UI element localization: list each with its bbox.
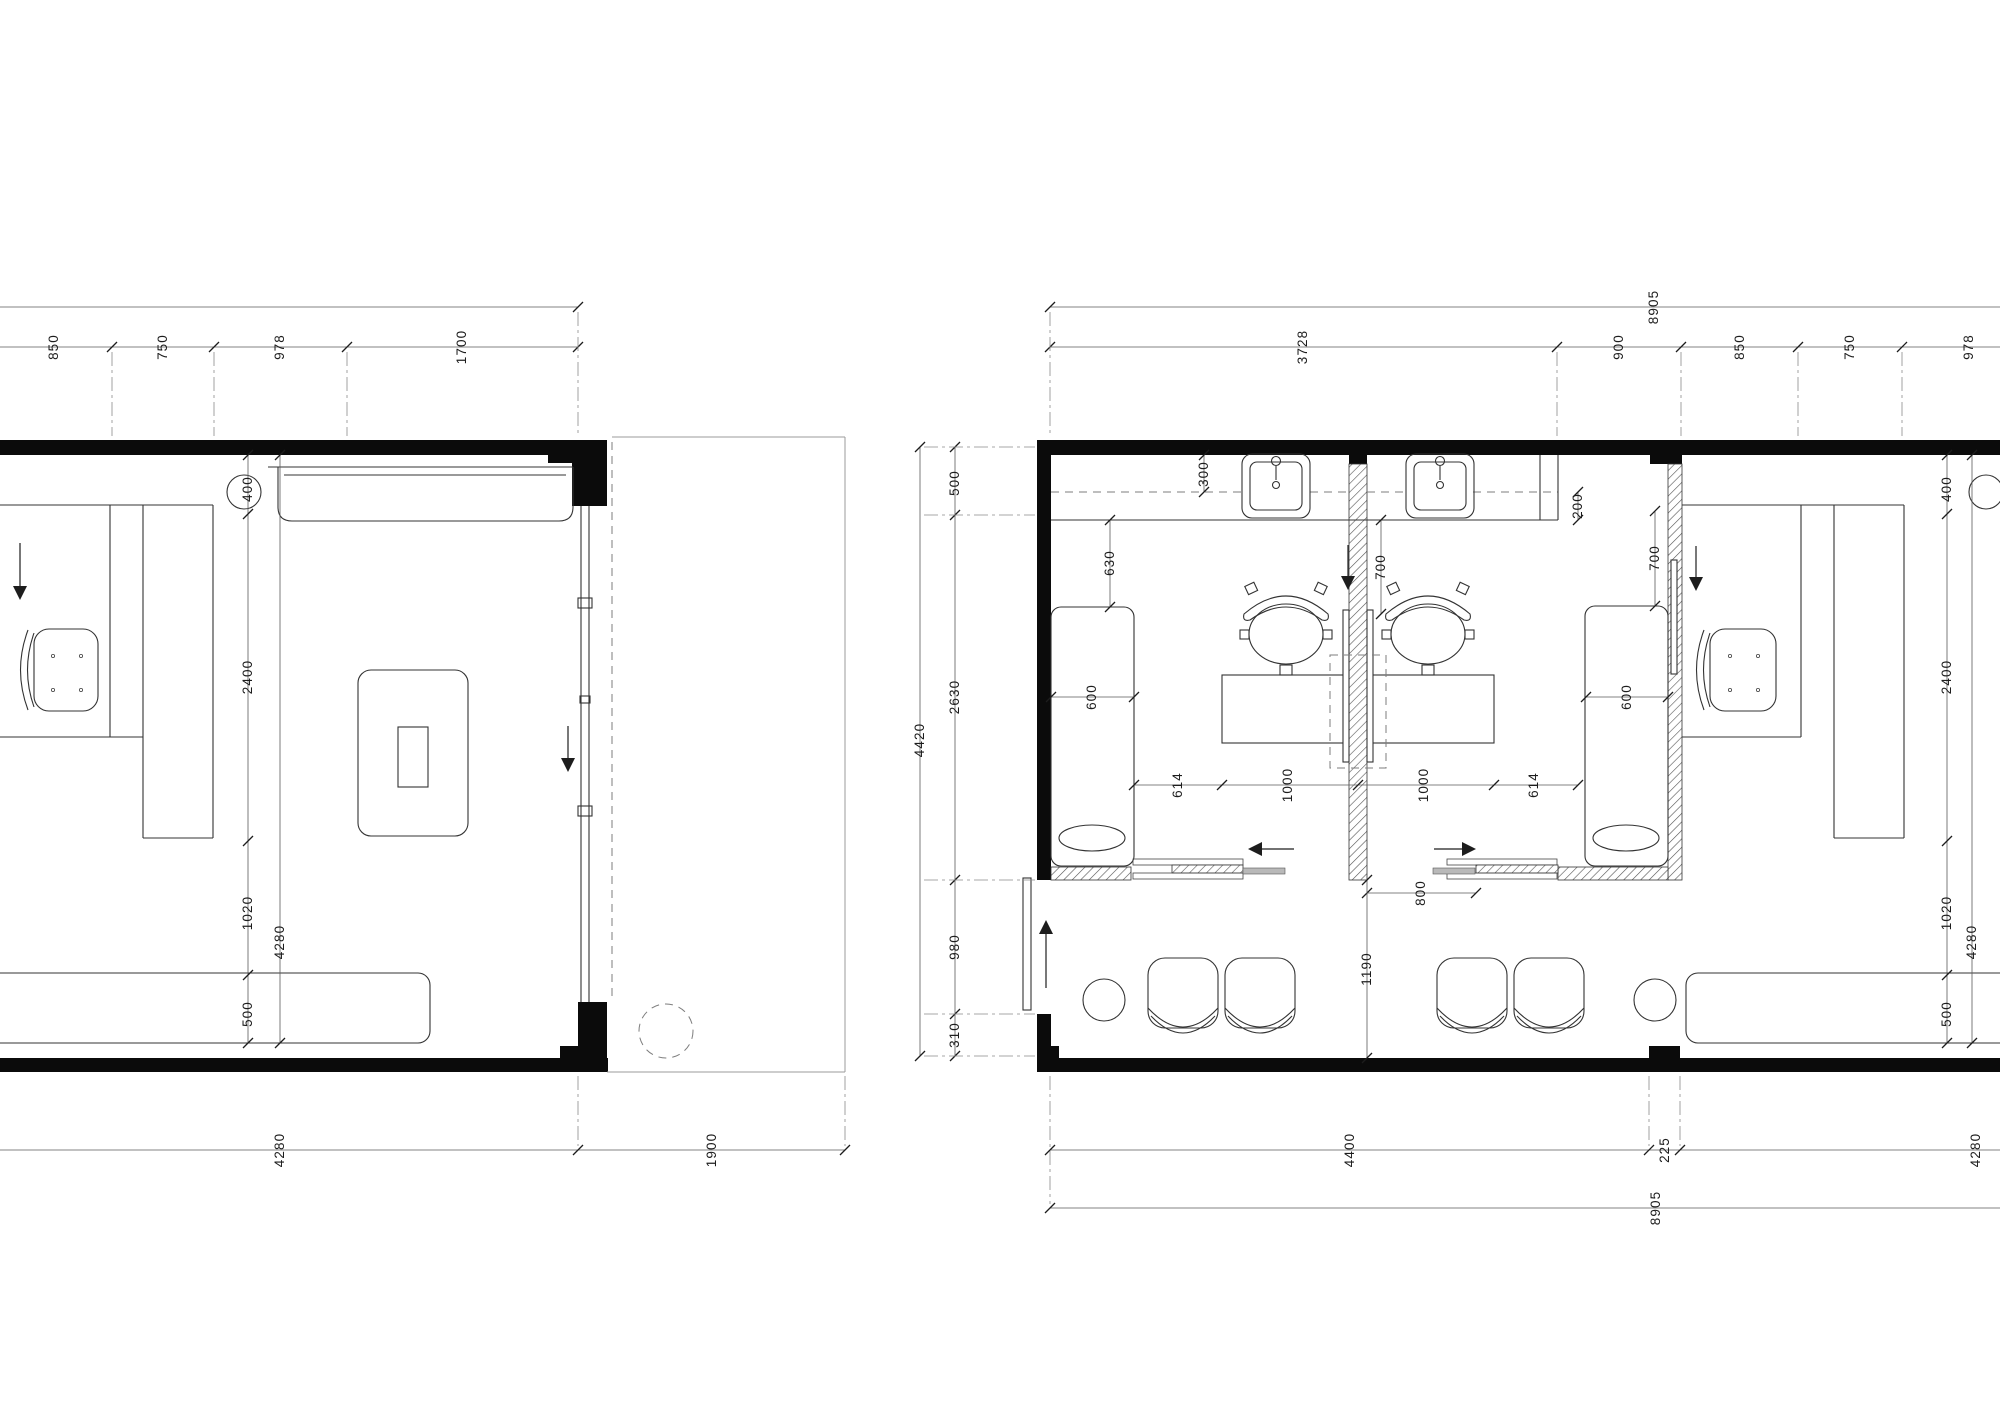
dim-label: 614 — [1170, 772, 1185, 798]
dim-label: 8905 — [1646, 290, 1661, 324]
plan-left-dimensions: 850 750 978 1700 400 2400 1020 500 4280 … — [0, 302, 850, 1167]
sill-right — [1558, 867, 1668, 880]
plan-left-walls — [0, 440, 608, 1072]
swing-arrow-window — [561, 726, 575, 772]
dim-label: 1900 — [704, 1133, 719, 1167]
dim-label: 700 — [1647, 545, 1662, 571]
wall-top — [1037, 440, 2000, 455]
wall-pier-bottom-right — [578, 1002, 607, 1072]
wall-top — [0, 440, 607, 455]
dim-label: 978 — [272, 334, 287, 360]
dim-label: 4280 — [1964, 925, 1979, 959]
dashed-circle-marker — [639, 1004, 693, 1058]
dim-label: 3728 — [1295, 330, 1310, 364]
mirror-right — [1367, 610, 1373, 762]
office-chair — [1697, 629, 1777, 711]
waiting-chair — [1225, 958, 1295, 1033]
partition-center — [1349, 464, 1367, 880]
dim-label: 4420 — [912, 723, 927, 757]
lounger-left — [1051, 607, 1134, 866]
cabinet-top — [268, 467, 573, 521]
sink-right — [1406, 454, 1474, 518]
dim-label: 1020 — [240, 896, 255, 930]
dim-label: 980 — [947, 934, 962, 960]
dim-label: 600 — [1619, 684, 1634, 710]
sink-counter — [1051, 455, 1558, 520]
dim-label: 500 — [1939, 1001, 1954, 1027]
wall-pier-225 — [1649, 1046, 1680, 1058]
dim-label: 1700 — [454, 330, 469, 364]
bench-bottom — [0, 973, 430, 1043]
dim-label: 310 — [947, 1022, 962, 1048]
treatment-table — [358, 670, 468, 836]
salon-chair-left — [1240, 582, 1332, 675]
side-table — [1634, 979, 1676, 1021]
waiting-chair — [1148, 958, 1218, 1033]
wall-step-top-right — [548, 455, 572, 463]
wall-bottom — [0, 1058, 608, 1072]
dim-label: 630 — [1102, 550, 1117, 576]
dim-label: 614 — [1526, 772, 1541, 798]
plan-left: 850 750 978 1700 400 2400 1020 500 4280 … — [0, 302, 850, 1167]
dim-label: 500 — [947, 470, 962, 496]
wall-bottom — [1037, 1058, 2000, 1072]
dim-label: 1190 — [1359, 952, 1374, 985]
dim-label: 300 — [1196, 461, 1211, 487]
adjacent-area — [607, 437, 845, 1072]
dim-label: 978 — [1961, 334, 1976, 360]
dim-label: 2400 — [1939, 660, 1954, 694]
plan-right: 8905 3728 900 850 750 978 4420 500 2630 … — [912, 290, 2000, 1225]
entry-door-leaf — [1023, 878, 1031, 1010]
salon-chair-right — [1382, 582, 1474, 675]
dim-label: 850 — [1732, 334, 1747, 360]
dim-label: 500 — [240, 1001, 255, 1027]
partition-center-cap — [1349, 455, 1367, 464]
sink-left — [1242, 454, 1310, 518]
side-table — [1083, 979, 1125, 1021]
dim-label: 850 — [46, 334, 61, 360]
floor-plan-sheet: 850 750 978 1700 400 2400 1020 500 4280 … — [0, 0, 2000, 1413]
dim-label: 400 — [240, 476, 255, 502]
desk — [0, 505, 213, 838]
sill-left — [1051, 867, 1131, 880]
mirror-left — [1343, 610, 1349, 762]
dim-label: 4280 — [1968, 1133, 1983, 1167]
plan-right-dimensions: 8905 3728 900 850 750 978 4420 500 2630 … — [912, 290, 2000, 1225]
lounger-right — [1585, 606, 1668, 866]
dim-label: 700 — [1373, 554, 1388, 580]
dim-label: 800 — [1413, 880, 1428, 906]
dim-label: 8905 — [1648, 1191, 1663, 1225]
window-wall — [578, 506, 592, 1002]
wall-left — [1037, 440, 1051, 880]
entry-arrow-left — [13, 543, 27, 600]
dim-label: 1000 — [1280, 768, 1295, 802]
entry-arrow — [1039, 920, 1053, 988]
dim-label: 1000 — [1416, 768, 1431, 802]
dim-label: 2400 — [240, 660, 255, 694]
dim-label: 4280 — [272, 925, 287, 959]
dim-label: 900 — [1611, 334, 1626, 360]
wall-step-bottom-right — [560, 1046, 578, 1058]
dim-label: 750 — [155, 334, 170, 360]
mirror-panel — [1671, 560, 1677, 674]
swing-arrow-right-room — [1689, 546, 1703, 591]
desk — [1682, 505, 1904, 838]
dim-label: 2630 — [947, 680, 962, 714]
dim-label: 225 — [1657, 1137, 1672, 1163]
partition-right-cap — [1650, 455, 1682, 464]
wall-pier-top-right — [572, 440, 607, 506]
sliding-door-right — [1433, 842, 1558, 879]
dim-label: 750 — [1842, 334, 1857, 360]
dim-label: 400 — [1939, 476, 1954, 502]
stool — [1969, 475, 2000, 509]
dim-label: 1020 — [1939, 896, 1954, 930]
dim-label: 4400 — [1342, 1133, 1357, 1167]
office-chair — [21, 629, 99, 711]
plan-right-walls — [1037, 440, 2000, 1072]
waiting-area — [1083, 958, 1676, 1033]
wall-step-bottom-left — [1037, 1046, 1059, 1058]
dim-label: 600 — [1084, 684, 1099, 710]
waiting-chair — [1437, 958, 1507, 1033]
right-office-room — [1671, 475, 2000, 1043]
floor-plan-drawing: 850 750 978 1700 400 2400 1020 500 4280 … — [0, 0, 2000, 1413]
waiting-chair — [1514, 958, 1584, 1033]
dim-label: 4280 — [272, 1133, 287, 1167]
dim-label: 200 — [1570, 493, 1585, 519]
sliding-door-left — [1133, 842, 1294, 879]
